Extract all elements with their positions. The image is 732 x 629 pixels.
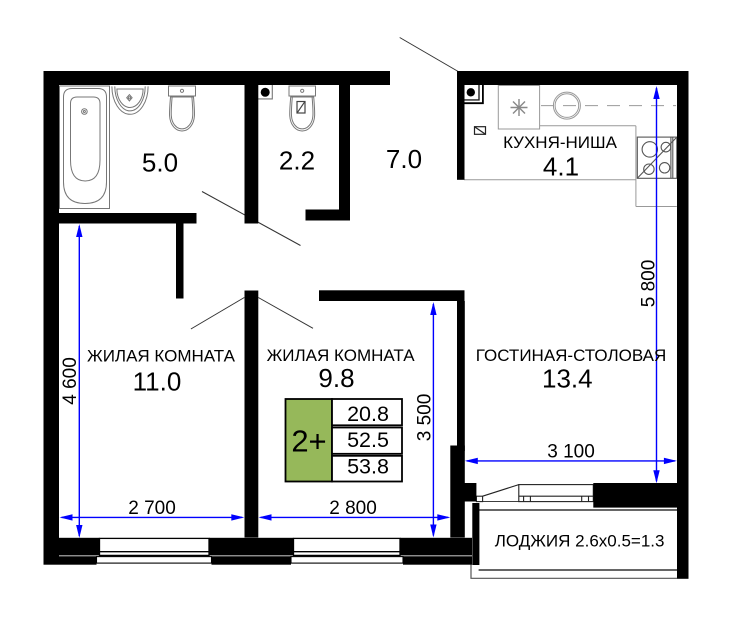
svg-text:2.2: 2.2 <box>279 146 315 176</box>
svg-text:7.0: 7.0 <box>386 144 422 174</box>
svg-text:ЖИЛАЯ КОМНАТА: ЖИЛАЯ КОМНАТА <box>87 347 236 366</box>
svg-text:ГОСТИНАЯ-СТОЛОВАЯ: ГОСТИНАЯ-СТОЛОВАЯ <box>476 346 666 365</box>
svg-text:20.8: 20.8 <box>347 402 389 426</box>
svg-text:2+: 2+ <box>291 424 326 459</box>
svg-text:4.1: 4.1 <box>543 151 579 181</box>
svg-text:9.8: 9.8 <box>318 363 354 393</box>
svg-text:2 800: 2 800 <box>329 498 377 519</box>
svg-text:52.5: 52.5 <box>347 428 389 452</box>
svg-text:5.0: 5.0 <box>142 147 178 177</box>
svg-text:13.4: 13.4 <box>542 364 593 394</box>
svg-text:ЛОДЖИЯ 2.6х0.5=1.3: ЛОДЖИЯ 2.6х0.5=1.3 <box>495 532 665 551</box>
svg-text:ЖИЛАЯ КОМНАТА: ЖИЛАЯ КОМНАТА <box>267 346 416 365</box>
svg-text:КУХНЯ-НИША: КУХНЯ-НИША <box>503 133 618 152</box>
svg-text:2 700: 2 700 <box>128 498 176 519</box>
svg-text:11.0: 11.0 <box>133 367 182 397</box>
svg-text:3 500: 3 500 <box>415 394 436 442</box>
svg-text:3 100: 3 100 <box>547 441 595 462</box>
svg-text:53.8: 53.8 <box>347 454 389 478</box>
svg-text:5 800: 5 800 <box>639 260 660 308</box>
svg-text:4 600: 4 600 <box>60 357 81 405</box>
